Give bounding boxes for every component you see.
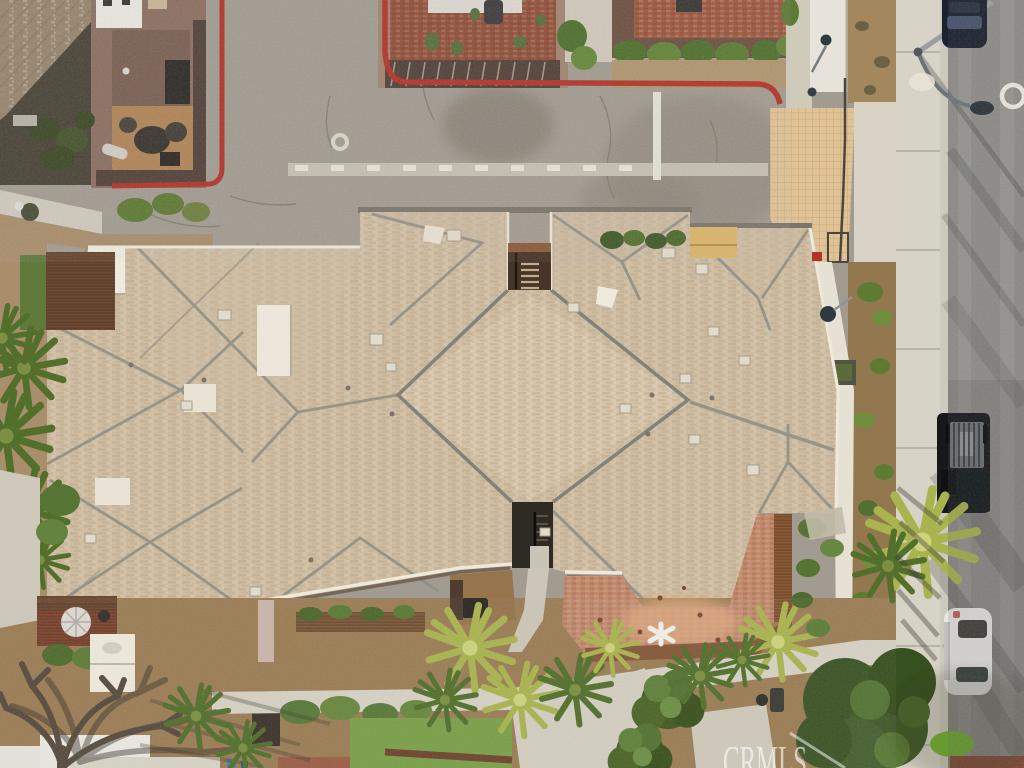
svg-text:CRMLS: CRMLS — [723, 737, 807, 768]
